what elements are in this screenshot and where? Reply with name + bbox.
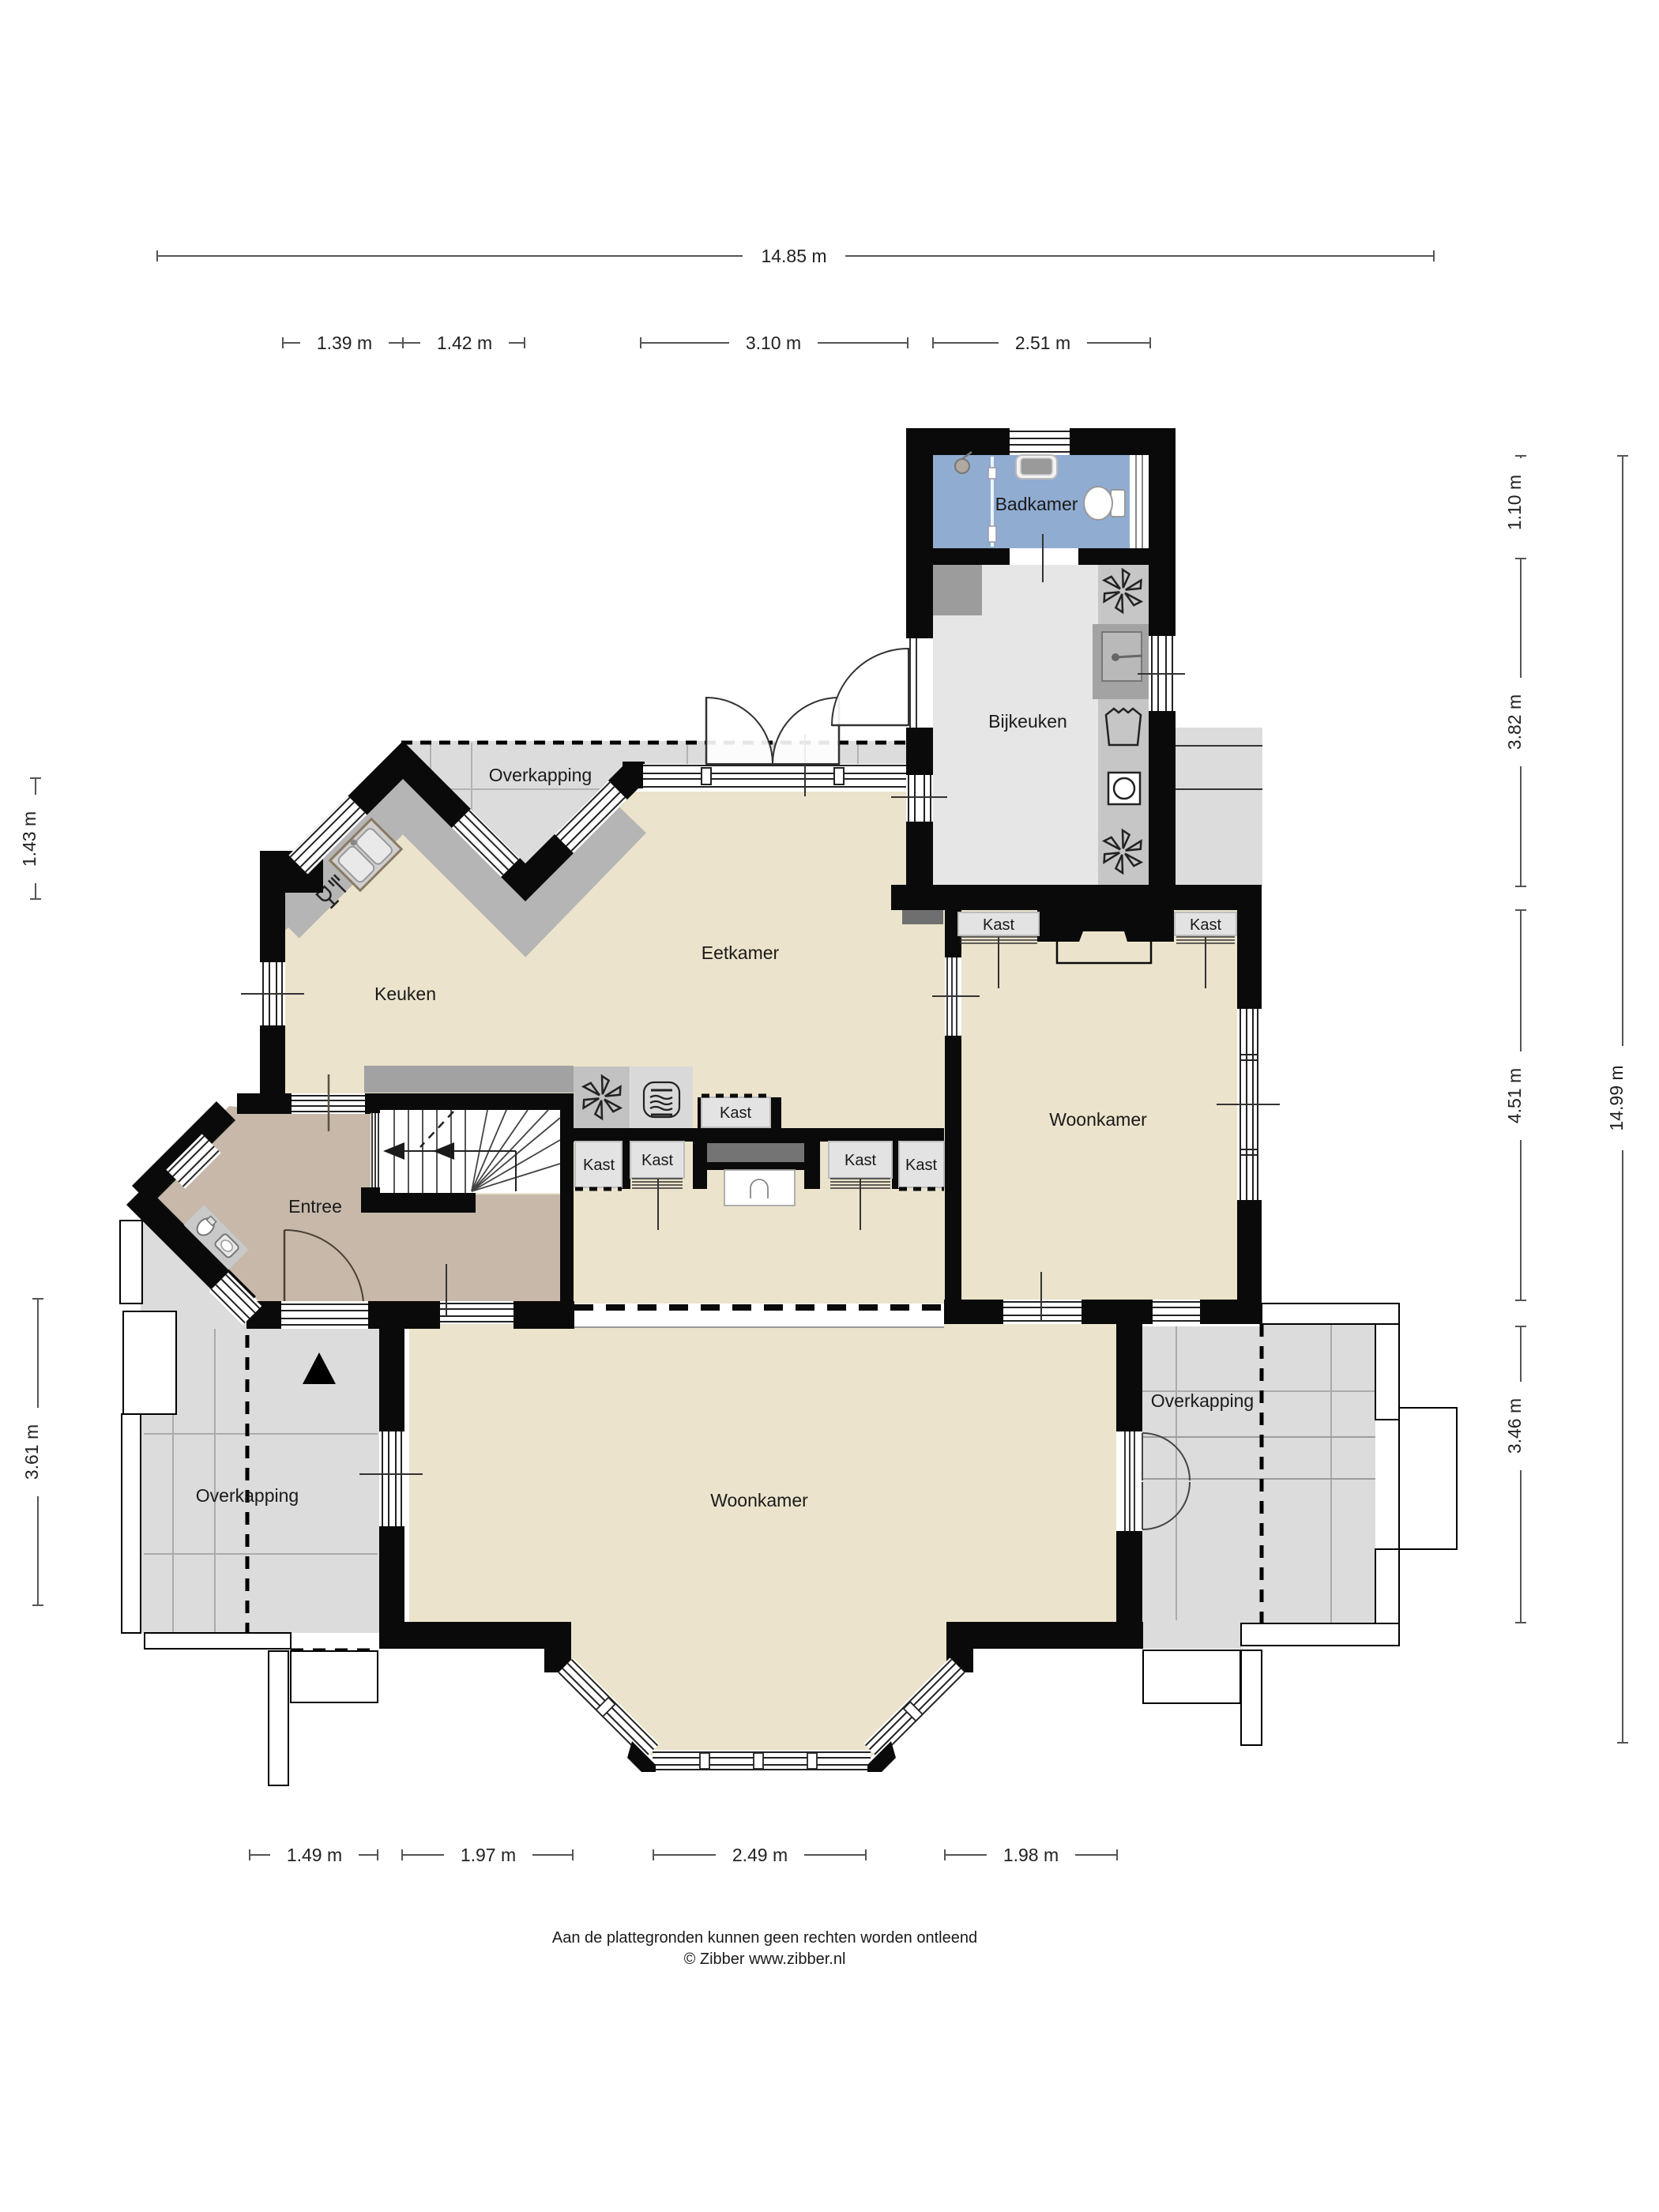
svg-text:Kast: Kast — [983, 916, 1014, 934]
svg-text:Keuken: Keuken — [374, 984, 436, 1004]
svg-text:Woonkamer: Woonkamer — [710, 1490, 808, 1510]
svg-text:1.39 m: 1.39 m — [317, 333, 372, 353]
svg-text:Kast: Kast — [720, 1104, 751, 1122]
svg-text:Entree: Entree — [288, 1196, 342, 1217]
svg-text:14.99 m: 14.99 m — [1606, 1065, 1627, 1130]
svg-text:1.49 m: 1.49 m — [287, 1845, 342, 1865]
svg-text:1.97 m: 1.97 m — [461, 1845, 516, 1865]
svg-text:1.98 m: 1.98 m — [1003, 1845, 1059, 1865]
svg-text:2.51 m: 2.51 m — [1015, 333, 1070, 353]
svg-text:Kast: Kast — [845, 1152, 876, 1169]
svg-text:Woonkamer: Woonkamer — [1049, 1109, 1147, 1130]
svg-text:Badkamer: Badkamer — [995, 494, 1078, 514]
svg-text:2.49 m: 2.49 m — [732, 1845, 788, 1865]
svg-text:3.82 m: 3.82 m — [1504, 694, 1525, 750]
svg-text:14.85 m: 14.85 m — [761, 246, 826, 266]
svg-text:Bijkeuken: Bijkeuken — [988, 711, 1067, 732]
svg-text:1.42 m: 1.42 m — [437, 333, 492, 353]
svg-text:3.46 m: 3.46 m — [1504, 1398, 1525, 1454]
svg-text:Kast: Kast — [641, 1152, 673, 1169]
svg-text:4.51 m: 4.51 m — [1504, 1068, 1525, 1123]
svg-text:Overkapping: Overkapping — [196, 1485, 299, 1506]
svg-text:Kast: Kast — [905, 1157, 937, 1174]
svg-text:1.10 m: 1.10 m — [1504, 475, 1525, 530]
svg-text:Overkapping: Overkapping — [489, 765, 592, 785]
svg-text:3.61 m: 3.61 m — [21, 1424, 42, 1480]
svg-text:3.10 m: 3.10 m — [746, 333, 801, 353]
svg-text:1.43 m: 1.43 m — [19, 811, 39, 867]
svg-text:Eetkamer: Eetkamer — [702, 942, 780, 963]
svg-text:Aan de plattegronden kunnen ge: Aan de plattegronden kunnen geen rechten… — [552, 1929, 977, 1947]
svg-text:© Zibber www.zibber.nl: © Zibber www.zibber.nl — [684, 1951, 846, 1968]
svg-text:Kast: Kast — [1190, 916, 1221, 934]
svg-text:Kast: Kast — [583, 1157, 615, 1174]
svg-text:Overkapping: Overkapping — [1151, 1390, 1254, 1411]
